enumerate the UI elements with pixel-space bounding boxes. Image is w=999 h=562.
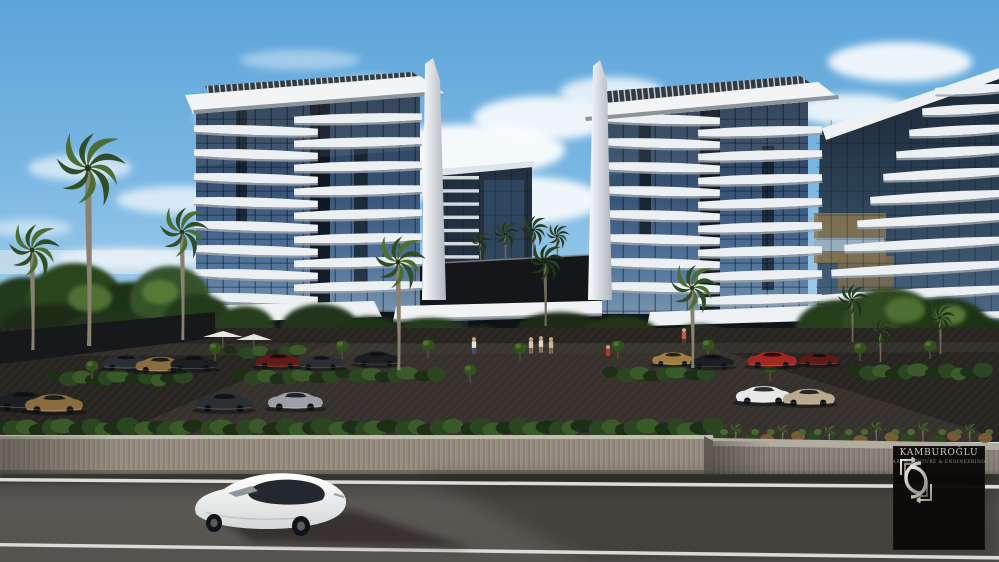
hedge [443, 419, 464, 434]
hedge [845, 365, 861, 376]
retaining-wall [0, 435, 716, 476]
cloud [828, 42, 972, 82]
hedge [427, 367, 445, 382]
tree [885, 297, 925, 323]
logo-watermark: KAMBUROĞLU ARCHITECTURE & ENGINEERING [893, 446, 985, 550]
street [0, 473, 999, 562]
logo-monogram-icon [893, 453, 939, 507]
hedge [289, 345, 307, 355]
cloud [240, 50, 360, 70]
tree [142, 280, 178, 304]
hedge [230, 370, 246, 381]
hedge [973, 363, 993, 378]
hedge [602, 367, 618, 378]
hedge [183, 420, 204, 433]
tower-right [578, 60, 842, 358]
architectural-rendering: KAMBUROĞLU ARCHITECTURE & ENGINEERING [0, 0, 999, 562]
hedge [45, 371, 61, 382]
scene-canvas [0, 0, 999, 562]
hedge [224, 346, 237, 355]
